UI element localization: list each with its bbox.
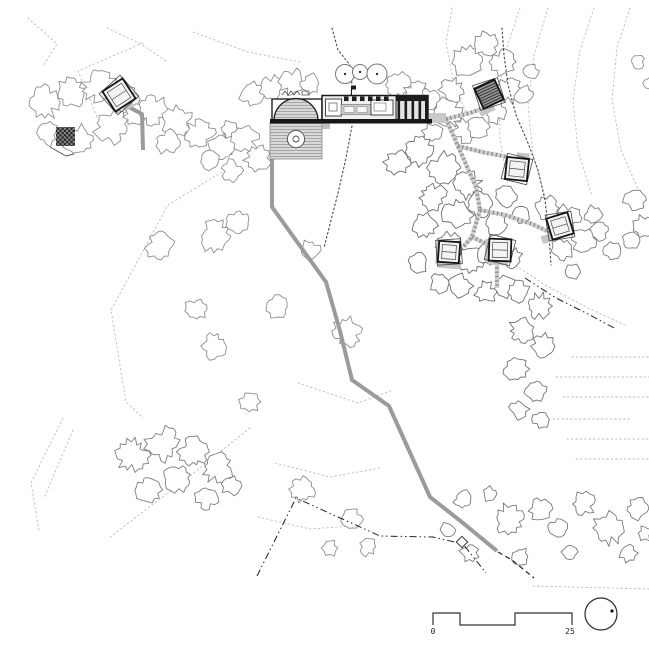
contour-line xyxy=(28,18,57,66)
tree-canopy xyxy=(509,317,534,343)
site-plan-drawing xyxy=(0,0,649,653)
scale-bar-start-label: 0 xyxy=(431,627,436,636)
round-tree-trunk xyxy=(359,71,361,73)
contour-line xyxy=(573,8,594,196)
tree-canopy xyxy=(164,466,190,494)
tree-canopy xyxy=(408,252,426,273)
round-tree-trunk xyxy=(344,73,346,75)
tree-canopy xyxy=(289,476,316,503)
tree-canopy xyxy=(623,190,647,210)
tree-canopy xyxy=(360,538,376,557)
tree-canopy xyxy=(593,510,625,546)
main-building-part xyxy=(351,86,356,90)
main-building-part xyxy=(419,96,422,119)
round-tree-trunk xyxy=(376,73,378,75)
boundary-marker-diamond xyxy=(456,536,467,547)
site-plan-canvas: 0 25 xyxy=(0,0,649,653)
survey-dotted-line xyxy=(324,126,352,248)
contour-line xyxy=(258,517,352,529)
tree-canopy xyxy=(453,490,471,509)
tree-canopy xyxy=(584,205,603,224)
tree-canopy xyxy=(632,56,645,70)
survey-line-layer xyxy=(324,28,551,265)
tree-canopy xyxy=(627,498,649,521)
main-building-part xyxy=(360,97,365,102)
main-building-part xyxy=(357,107,367,113)
hot-tub xyxy=(293,136,299,142)
north-marker-dot xyxy=(610,609,613,612)
tree-canopy xyxy=(509,401,530,420)
tree-canopy xyxy=(484,486,497,502)
tree-canopy xyxy=(561,545,578,559)
cabin xyxy=(501,153,533,185)
cabin xyxy=(436,239,463,266)
contour-line xyxy=(275,463,380,477)
tree-canopy xyxy=(551,238,572,261)
main-building-part xyxy=(384,97,389,102)
main-building-part xyxy=(412,96,415,119)
tree-canopy xyxy=(622,232,640,248)
tree-canopy xyxy=(565,264,581,279)
tree-canopy xyxy=(619,544,638,563)
scale-bar-end-label: 25 xyxy=(565,627,575,636)
tree-canopy xyxy=(135,478,163,503)
contour-line xyxy=(31,418,63,530)
tree-canopy xyxy=(531,332,555,358)
tree-canopy xyxy=(266,295,287,318)
tree-canopy xyxy=(58,77,84,107)
tree-canopy xyxy=(176,436,209,466)
tree-canopy xyxy=(37,121,58,147)
main-building-part xyxy=(398,96,401,119)
tree-canopy xyxy=(603,242,621,260)
tree-canopy xyxy=(524,381,547,401)
tree-canopy xyxy=(440,522,456,536)
tree-canopy xyxy=(448,273,474,298)
tree-canopy xyxy=(221,158,244,182)
main-building-part xyxy=(368,97,373,102)
main-building-part xyxy=(270,119,432,124)
tree-canopy xyxy=(194,488,218,510)
cabin xyxy=(484,234,516,266)
tree-canopy xyxy=(468,117,491,138)
scale-bar xyxy=(433,613,572,625)
contour-line xyxy=(533,586,649,589)
tree-canopy xyxy=(115,437,151,472)
tree-canopy xyxy=(93,109,130,145)
tree-canopy xyxy=(201,333,227,361)
tree-canopy xyxy=(29,84,60,119)
tree-canopy xyxy=(474,281,498,302)
boundary-dash-dot-line xyxy=(257,498,486,576)
tree-canopy xyxy=(412,212,438,237)
tree-canopy xyxy=(528,292,552,320)
utility-pad xyxy=(56,127,75,146)
contour-line xyxy=(612,8,641,196)
tree-canopy xyxy=(144,425,180,463)
tree-canopy xyxy=(341,509,364,529)
annotation-layer xyxy=(433,598,617,630)
main-building-part xyxy=(344,107,354,113)
tree-canopy xyxy=(528,498,553,520)
tree-canopy xyxy=(226,211,249,234)
contour-line xyxy=(44,430,73,498)
main-building-part xyxy=(352,97,357,102)
tree-canopy xyxy=(548,519,568,537)
north-marker-circle xyxy=(585,598,617,630)
survey-dotted-line xyxy=(332,28,352,95)
tree-canopy xyxy=(532,412,550,428)
tree-canopy xyxy=(573,491,596,515)
tree-canopy xyxy=(497,503,525,535)
main-building-part xyxy=(376,97,381,102)
tree-canopy xyxy=(144,231,175,260)
contour-line xyxy=(111,172,222,418)
main-building-part xyxy=(326,99,342,116)
tree-canopy xyxy=(643,78,649,89)
tree-canopy xyxy=(185,299,207,319)
tree-canopy xyxy=(475,31,499,56)
main-building-part xyxy=(344,97,349,102)
tree-canopy xyxy=(503,357,530,380)
tree-canopy xyxy=(239,393,261,412)
tree-canopy xyxy=(321,540,338,556)
tree-canopy xyxy=(431,274,450,294)
main-building-part xyxy=(425,96,428,119)
tree-canopy xyxy=(523,64,540,78)
main-building-part xyxy=(405,96,408,119)
contour-line xyxy=(193,32,300,62)
tree-canopy xyxy=(638,526,649,541)
tree-canopy xyxy=(496,186,518,208)
contour-line xyxy=(107,28,166,61)
